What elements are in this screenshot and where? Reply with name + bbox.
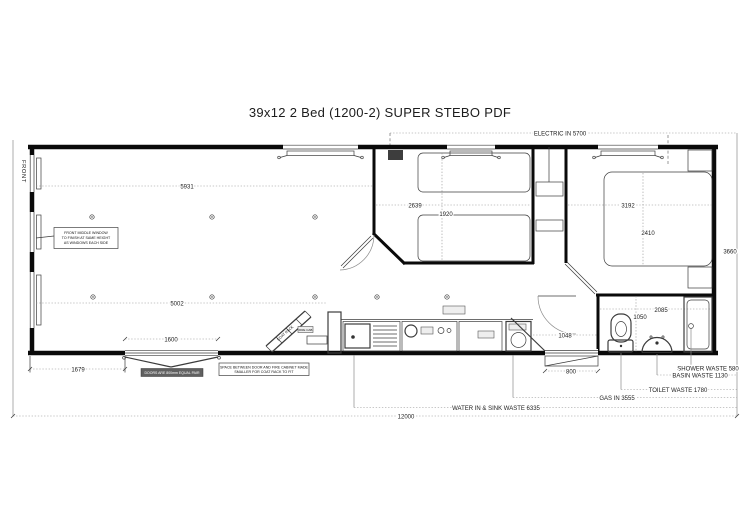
front-window-note-l2: TO FINISH AT SAME HEIGHT bbox=[62, 236, 111, 240]
front-door-note-text: DOORS ARE 800mm EQUAL PAIR bbox=[144, 371, 200, 375]
coat-space-note-l1: SPACE BETWEEN DOOR AND FIRE CABINET MADE bbox=[220, 365, 309, 369]
bathroom-door bbox=[538, 296, 576, 334]
coat-space-note-l2: SMALLER FOR COAT RACK TO FIT bbox=[234, 370, 294, 374]
double-bed bbox=[604, 172, 712, 266]
light bbox=[375, 295, 379, 299]
water-in-label: WATER IN & SINK WASTE 6335 bbox=[452, 406, 540, 412]
dim-3192: 3192 bbox=[621, 204, 635, 210]
front-window-note-l1: FRONT MIDDLE WINDOW bbox=[64, 231, 108, 235]
bedroom2: 2639 1920 bbox=[376, 150, 531, 261]
kitchen-callout-box bbox=[443, 306, 465, 314]
front-door-note: DOORS ARE 800mm EQUAL PAIR bbox=[141, 369, 203, 377]
kitchen-sink bbox=[343, 322, 400, 352]
bedside-cabinet-1 bbox=[688, 150, 712, 171]
front-window-note: FRONT MIDDLE WINDOW TO FINISH AT SAME HE… bbox=[36, 228, 118, 249]
window-front-3 bbox=[28, 272, 41, 328]
shower bbox=[684, 297, 712, 352]
front-windows bbox=[28, 155, 41, 328]
ceiling-lights bbox=[90, 215, 449, 299]
top-windows bbox=[278, 143, 664, 159]
dim-1600: 1600 bbox=[164, 338, 178, 344]
dim-1050: 1050 bbox=[633, 315, 647, 321]
dim-1048: 1048 bbox=[558, 334, 572, 340]
dim-3660: 3660 bbox=[723, 250, 737, 256]
service-lines: SHOWER WASTE 580 BASIN WASTE 1130 TOILET… bbox=[11, 329, 739, 420]
dim-1679: 1679 bbox=[71, 368, 85, 374]
fire-cabinet: FIRE CAB bbox=[298, 327, 327, 345]
bedroom1: 3192 2410 bbox=[568, 150, 712, 288]
dim-2639: 2639 bbox=[408, 204, 422, 210]
front-window-note-l3: AS WINDOWS EACH SIDE bbox=[64, 241, 109, 245]
kitchen-worktop bbox=[459, 322, 502, 352]
bedroom1-door bbox=[565, 262, 597, 294]
gas-in-label: GAS IN 3555 bbox=[599, 396, 635, 402]
window-lounge-top bbox=[278, 143, 364, 159]
shower-waste-label: SHOWER WASTE 580 bbox=[677, 366, 739, 372]
basin-waste-label: BASIN WASTE 1130 bbox=[672, 373, 728, 379]
front-label: FRONT bbox=[20, 160, 26, 183]
dim-2410: 2410 bbox=[641, 231, 655, 237]
toilet-waste-label: TOILET WASTE 1780 bbox=[649, 388, 708, 394]
electric-in-label: ELECTRIC IN 5700 bbox=[534, 132, 587, 138]
wardrobes bbox=[536, 147, 563, 231]
dim-5002: 5002 bbox=[170, 302, 184, 308]
light bbox=[90, 215, 94, 219]
coat-space-note: SPACE BETWEEN DOOR AND FIRE CABINET MADE… bbox=[219, 363, 309, 376]
light bbox=[210, 215, 214, 219]
toilet bbox=[608, 314, 633, 352]
window-bedroom1-top bbox=[593, 143, 664, 159]
window-front-1 bbox=[28, 155, 41, 192]
bedside-cabinet-2 bbox=[688, 267, 712, 288]
kitchen-hob bbox=[402, 322, 457, 352]
tall-kitchen-unit bbox=[328, 312, 341, 353]
dim-1920: 1920 bbox=[439, 212, 453, 218]
interior-walls bbox=[373, 147, 716, 353]
bedroom2-door bbox=[340, 235, 374, 270]
dim-800: 800 bbox=[566, 370, 577, 376]
hall: 1048 bbox=[533, 334, 598, 340]
drawing-sheet: 39x12 2 Bed (1200-2) SUPER STEBO PDF FRO… bbox=[0, 0, 750, 530]
dim-2085: 2085 bbox=[654, 308, 668, 314]
kitchen bbox=[341, 306, 533, 352]
page-title: 39x12 2 Bed (1200-2) SUPER STEBO PDF bbox=[249, 105, 511, 120]
window-bedroom2-top bbox=[442, 143, 501, 159]
floorplan-svg: 39x12 2 Bed (1200-2) SUPER STEBO PDF FRO… bbox=[0, 0, 750, 530]
basin bbox=[642, 336, 672, 353]
twin-bed-2 bbox=[418, 215, 530, 261]
light bbox=[91, 295, 95, 299]
bedroom2-cabinet bbox=[388, 150, 403, 160]
light bbox=[313, 295, 317, 299]
dim-12000: 12000 bbox=[398, 414, 415, 420]
light bbox=[445, 295, 449, 299]
light bbox=[313, 215, 317, 219]
window-front-middle bbox=[28, 212, 41, 252]
light bbox=[210, 295, 214, 299]
bathroom: 2085 1050 bbox=[600, 296, 712, 353]
dim-5931: 5931 bbox=[180, 185, 194, 191]
fire-cabinet-label: FIRE CAB bbox=[299, 328, 313, 332]
twin-bed-1 bbox=[418, 153, 530, 192]
